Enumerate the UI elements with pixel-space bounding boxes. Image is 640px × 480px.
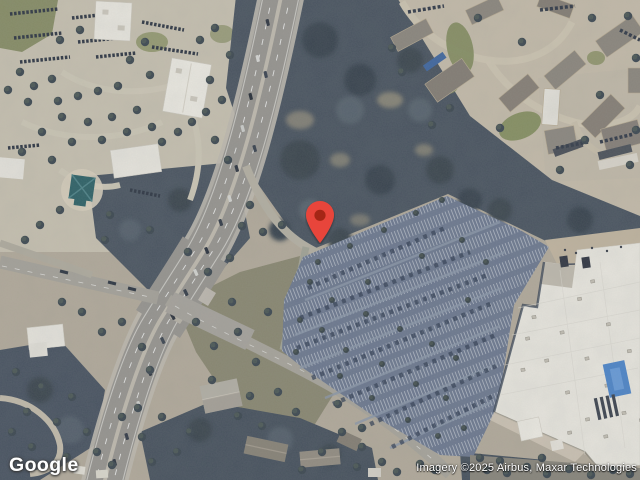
map-pin-icon[interactable] [305, 200, 335, 244]
pin-dot [314, 210, 325, 221]
imagery-attribution: Imagery ©2025 Airbus, Maxar Technologies [416, 463, 637, 474]
google-logo[interactable]: Google [9, 456, 79, 476]
pin-body [306, 201, 334, 243]
satellite-map[interactable]: Google Imagery ©2025 Airbus, Maxar Techn… [0, 0, 640, 480]
